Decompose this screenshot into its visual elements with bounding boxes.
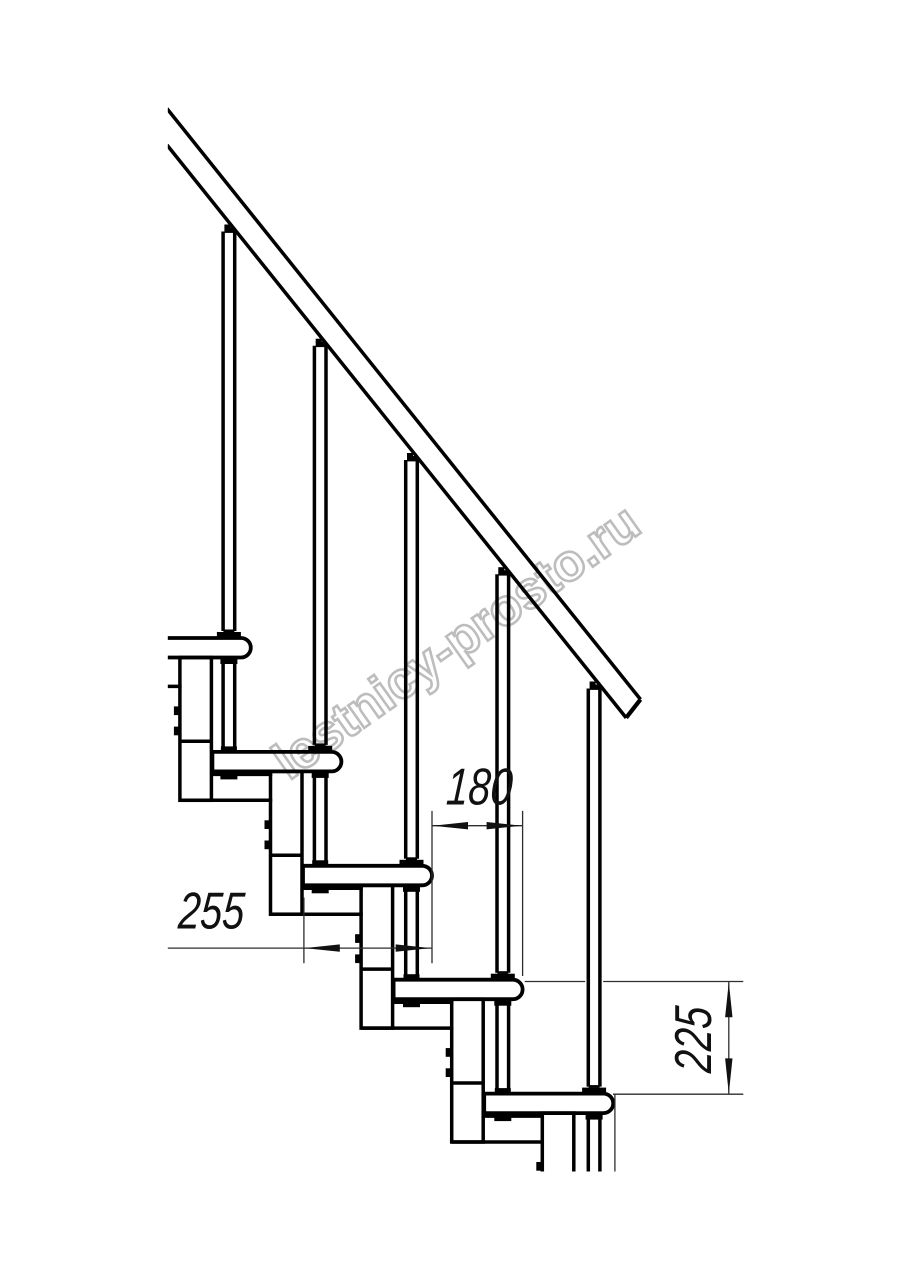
svg-text:180: 180 — [445, 757, 515, 815]
svg-text:225: 225 — [664, 1004, 722, 1075]
svg-text:255: 255 — [176, 881, 247, 939]
